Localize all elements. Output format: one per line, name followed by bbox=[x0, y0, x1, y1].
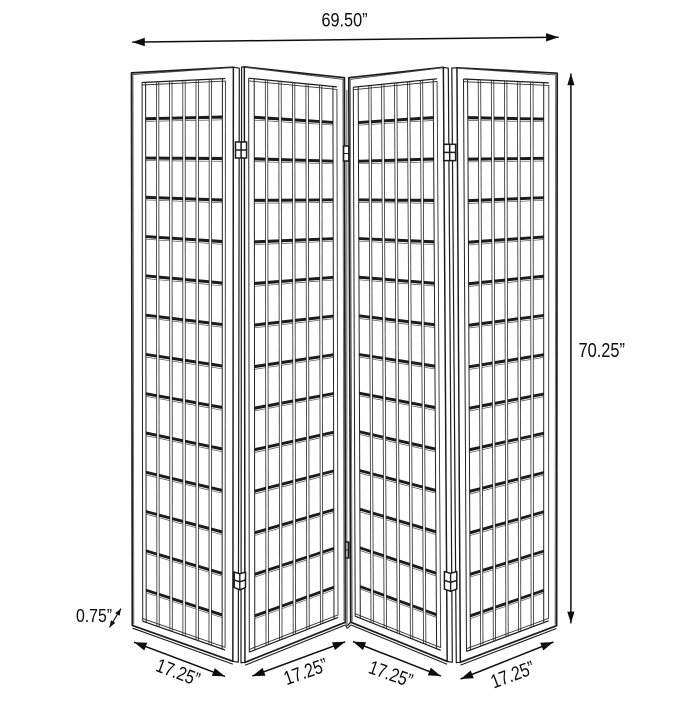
svg-text:69.50”: 69.50” bbox=[322, 10, 368, 32]
svg-text:0.75”: 0.75” bbox=[76, 606, 112, 626]
svg-text:70.25”: 70.25” bbox=[579, 340, 626, 362]
